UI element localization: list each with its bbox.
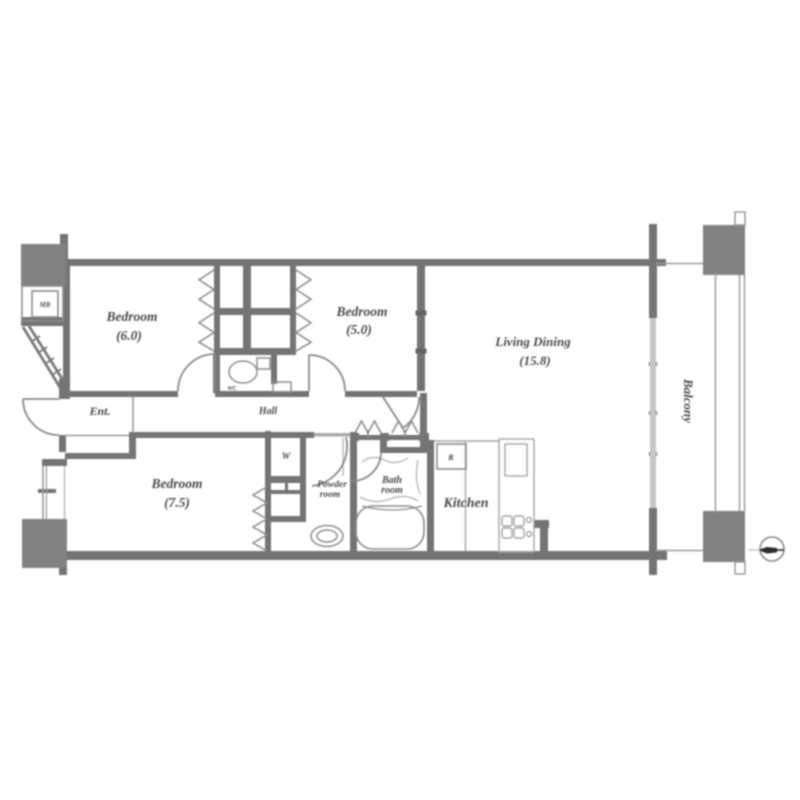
svg-text:(15.8): (15.8) [519, 353, 550, 368]
svg-text:(7.5): (7.5) [164, 495, 190, 510]
svg-text:Bedroom: Bedroom [335, 304, 387, 319]
svg-text:R: R [447, 452, 454, 462]
svg-text:Kitchen: Kitchen [442, 496, 488, 511]
svg-text:WC: WC [227, 386, 237, 392]
svg-text:room: room [320, 490, 341, 500]
svg-text:Balcony: Balcony [681, 378, 696, 423]
svg-text:room: room [381, 485, 403, 496]
svg-text:Powder: Powder [317, 480, 347, 490]
svg-text:Living Dining: Living Dining [494, 334, 571, 349]
svg-text:Bedroom: Bedroom [105, 309, 157, 324]
svg-text:(6.0): (6.0) [116, 328, 142, 343]
svg-text:(5.0): (5.0) [346, 322, 372, 337]
svg-text:W: W [282, 452, 291, 462]
svg-text:Ent.: Ent. [88, 404, 110, 418]
svg-text:MB: MB [39, 301, 51, 309]
svg-text:Bedroom: Bedroom [150, 476, 202, 491]
svg-text:Hall: Hall [258, 406, 278, 417]
